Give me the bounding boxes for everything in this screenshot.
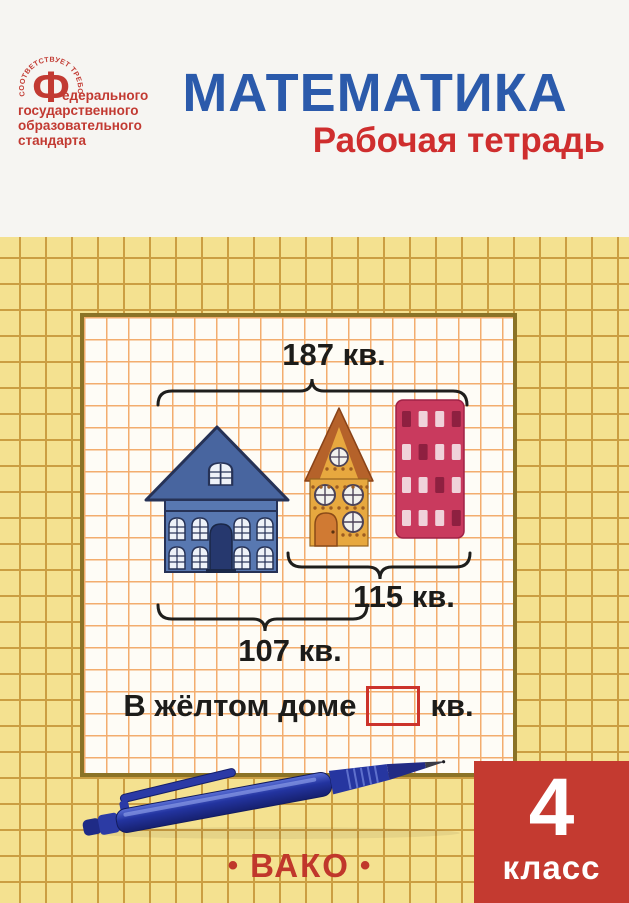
publisher-left-dot: •: [228, 849, 241, 882]
book-cover: СООТВЕТСТВУЕТ ТРЕБОВАНИЯМ Ф едерального …: [0, 0, 629, 903]
grade-word: класс: [503, 851, 601, 884]
blue-house: [146, 427, 288, 573]
label-total-apartments: 187 кв.: [244, 337, 424, 373]
publisher-name: ВАКО: [250, 847, 350, 884]
question-row: В жёлтом доме кв.: [84, 686, 513, 726]
pen-illustration: [60, 733, 490, 858]
fgos-line-3: образовательного: [18, 118, 142, 133]
brace-right: [288, 553, 470, 579]
red-building: [396, 400, 464, 538]
publisher-line: •ВАКО•: [140, 847, 460, 885]
question-text: В жёлтом доме: [123, 688, 356, 724]
label-right-apartments: 115 кв.: [314, 579, 494, 615]
grade-badge: 4 класс: [474, 761, 629, 903]
grade-number: 4: [529, 767, 575, 849]
yellow-house: [305, 408, 373, 546]
answer-box: [366, 686, 420, 726]
publisher-right-dot: •: [360, 849, 373, 882]
worksheet-panel: 187 кв. 115 кв. 107 кв. В жёлтом доме кв…: [80, 313, 517, 777]
fgos-line-2: государственного: [18, 103, 139, 118]
question-unit: кв.: [430, 688, 473, 724]
fgos-line-4: стандарта: [18, 133, 87, 148]
book-subtitle: Рабочая тетрадь: [313, 121, 605, 161]
book-title: МАТЕМАТИКА: [135, 62, 615, 124]
label-left-apartments: 107 кв.: [200, 633, 380, 669]
